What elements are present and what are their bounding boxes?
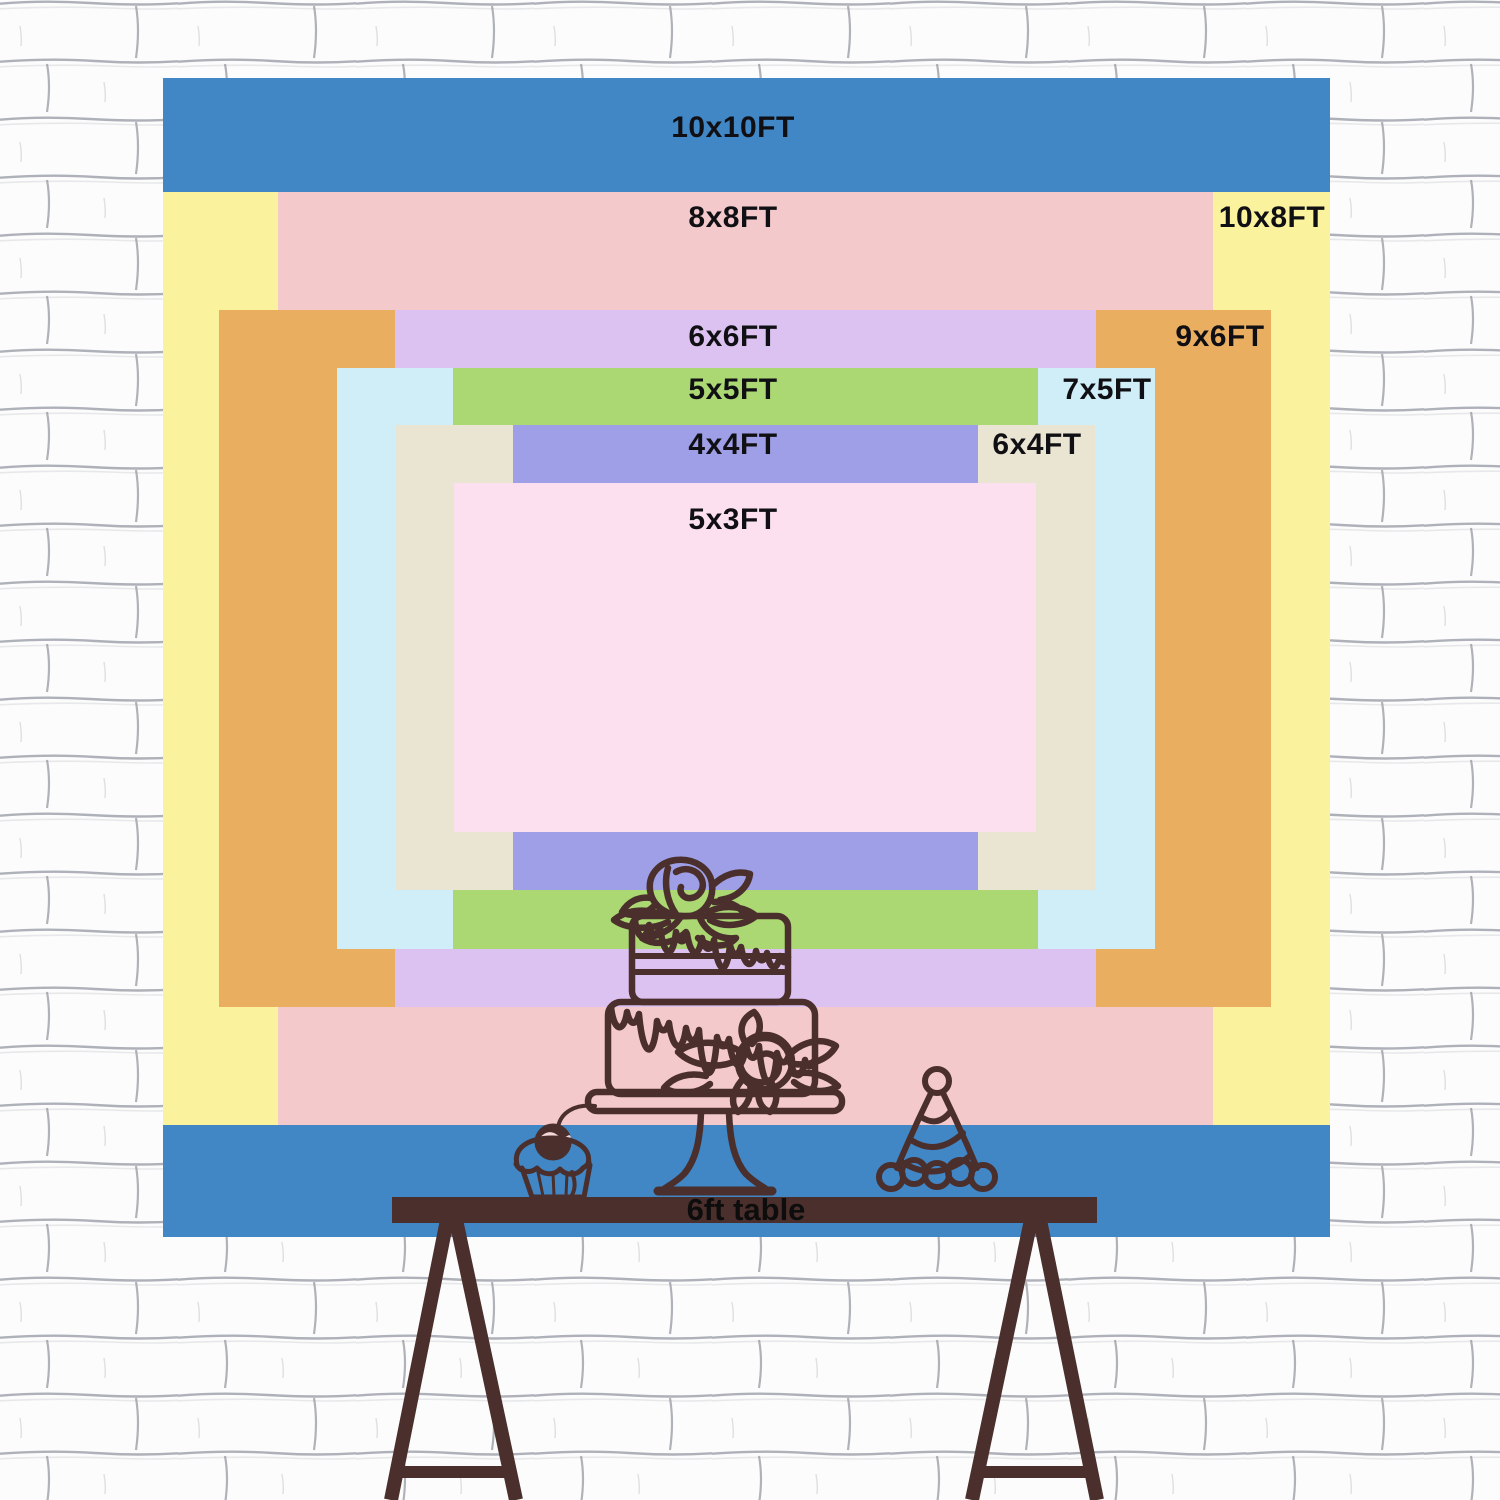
rose-spiral (676, 869, 703, 898)
right-trestle-leg-b (1040, 1220, 1097, 1500)
cupcake-icing-drip (572, 1172, 575, 1195)
scallop (971, 1165, 995, 1189)
left-trestle-leg-a (391, 1220, 447, 1500)
right-trestle-leg-a (972, 1220, 1031, 1500)
trestle-legs (391, 1220, 1097, 1500)
hat-scallop-trim (879, 1160, 995, 1189)
backdrop-size-chart-page: 10x10FT 8x8FT 10x8FT 6x6FT 9x6FT 5x5FT 7… (0, 0, 1500, 1500)
cupcake-icon (516, 1106, 595, 1197)
decorations (0, 0, 1500, 1500)
table-label: 6ft table (687, 1192, 806, 1228)
rose-petal-split (666, 868, 676, 914)
cherry (537, 1126, 569, 1158)
rose-left-lower-leaf (664, 1075, 710, 1093)
cake-icon (588, 860, 842, 1191)
party-hat-icon (879, 1069, 995, 1189)
hat-pom (925, 1069, 949, 1093)
left-trestle-leg-b (456, 1220, 516, 1500)
cake-pedestal (664, 1113, 766, 1189)
cupcake-wrapper-pleats (538, 1172, 567, 1196)
